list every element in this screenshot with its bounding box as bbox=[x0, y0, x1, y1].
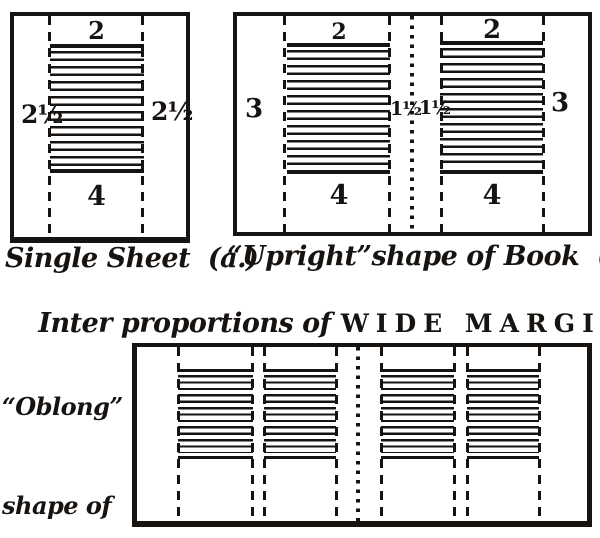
text-lines bbox=[287, 50, 390, 167]
column-text-block-4 bbox=[467, 369, 539, 459]
left-page-margin-top: 2 bbox=[287, 21, 390, 43]
text-lines bbox=[178, 375, 253, 453]
column-text-block-1 bbox=[178, 369, 253, 459]
caption-upright-book: “Upright”shape of Book (b.) bbox=[227, 242, 600, 272]
column-text-block-3 bbox=[381, 369, 454, 459]
text-lines bbox=[467, 375, 539, 453]
text-block bbox=[50, 44, 144, 173]
panel-oblong-book bbox=[132, 343, 592, 527]
right-page-margin-bottom: 4 bbox=[440, 182, 543, 209]
right-page-margin-inner: 1½ bbox=[419, 99, 450, 118]
right-page-text-block bbox=[440, 41, 543, 174]
margin-value-right: 2½ bbox=[151, 99, 192, 124]
margin-value-left: 2½ bbox=[21, 102, 62, 127]
margin-value-bottom: 4 bbox=[48, 183, 144, 210]
panel-single-sheet: 2 2½ 2½ 4 bbox=[10, 12, 190, 243]
spine-fold-dotted-line bbox=[356, 347, 360, 521]
text-lines bbox=[50, 51, 144, 166]
right-page-margin-outer: 3 bbox=[551, 90, 568, 116]
spine-fold-dotted-line bbox=[410, 16, 414, 232]
text-lines bbox=[381, 375, 454, 453]
column-text-block-2 bbox=[264, 369, 336, 459]
text-lines bbox=[264, 375, 336, 453]
left-page-outer-dashed-line bbox=[283, 16, 286, 232]
caption-single-sheet: Single Sheet (a.) bbox=[5, 244, 258, 274]
left-page-margin-outer: 3 bbox=[245, 96, 262, 122]
left-page-margin-inner: 1½ bbox=[390, 100, 421, 119]
book-margins-figure: 2 2½ 2½ 4 2 3 1½ 4 2 1½ 3 4 Single Sheet… bbox=[0, 0, 600, 538]
subtitle-caps-text: WIDE MARGINS bbox=[341, 309, 600, 338]
left-page-margin-bottom: 4 bbox=[287, 182, 390, 209]
panel-upright-book: 2 3 1½ 4 2 1½ 3 4 bbox=[233, 12, 592, 236]
text-lines bbox=[440, 48, 543, 167]
right-page-margin-top: 2 bbox=[440, 17, 543, 43]
left-page-text-block bbox=[287, 43, 390, 174]
margin-value-top: 2 bbox=[48, 19, 144, 43]
